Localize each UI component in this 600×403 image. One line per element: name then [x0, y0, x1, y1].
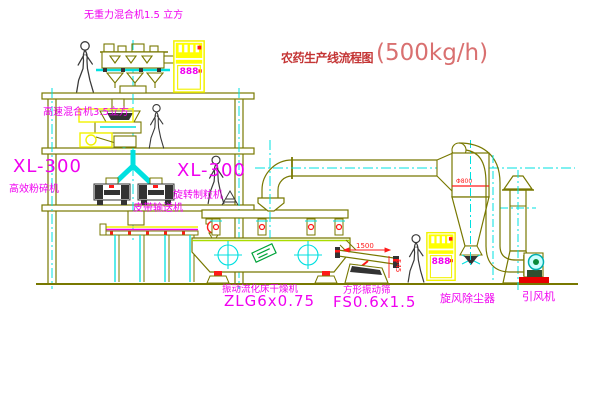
label-belt-conveyor: 皮带输送机	[133, 204, 183, 215]
screen-height-dimension: 545	[394, 259, 402, 272]
control-cabinet-2: 888	[427, 233, 455, 281]
label-high-speed-mixer: 高速混合机3.5立方	[43, 108, 129, 119]
control-cabinet-1: 888	[174, 41, 204, 92]
label-fan: 引风机	[522, 291, 555, 303]
label-gravity-mixer: 无重力混合机1.5 立方	[84, 11, 183, 22]
belt-conveyor-drawing	[100, 224, 198, 282]
person-second-floor	[149, 105, 163, 149]
flow-diagram: 888	[0, 0, 600, 403]
fluid-bed-dryer-drawing	[192, 210, 356, 283]
gravity-mixer-drawing	[96, 44, 174, 93]
cabinet-1-display: 888	[180, 67, 199, 77]
granulator-right	[138, 178, 174, 205]
label-granulator-model: XL-300	[177, 162, 246, 181]
label-dryer-model: ZLG6x0.75	[224, 294, 315, 310]
cabinet-2-display: 888	[432, 257, 451, 267]
person-top-floor	[77, 42, 94, 92]
label-screen-model: FS0.6x1.5	[333, 295, 416, 311]
label-crusher-name: 高效粉碎机	[9, 185, 59, 196]
label-crusher-model: XL-300	[13, 158, 82, 177]
title-capacity: (500kg/h)	[376, 44, 488, 64]
fan-drawing	[519, 253, 549, 283]
person-ground	[408, 235, 424, 282]
label-cyclone: 旋风除尘器	[440, 293, 495, 305]
title-text: 农药生产线流程图	[281, 52, 373, 64]
screen-length-dimension: 1500	[356, 242, 374, 250]
diagram-title: 农药生产线流程图 (500kg/h)	[281, 44, 488, 64]
y-pipe	[114, 150, 152, 184]
granulator-left	[94, 178, 130, 205]
label-granulator-name: 旋转制粒机	[173, 191, 223, 202]
cyclone-dimension: Φ800	[456, 178, 472, 185]
